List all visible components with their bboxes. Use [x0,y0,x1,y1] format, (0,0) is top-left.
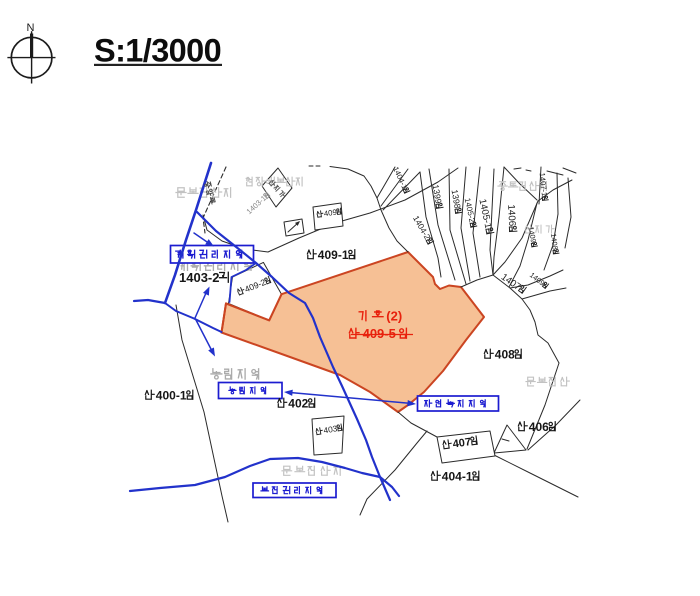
svg-text:N: N [27,22,35,34]
svg-text:1406: 1406 [505,204,517,227]
svg-text:(2): (2) [386,309,402,324]
svg-text:408: 408 [495,347,515,361]
svg-text:409-1: 409-1 [318,248,349,262]
svg-text:400-1: 400-1 [156,388,187,402]
svg-text:404-1: 404-1 [442,469,473,483]
svg-text:S:1/3000: S:1/3000 [94,33,221,69]
svg-text:407: 407 [452,436,472,450]
svg-text:1403-2: 1403-2 [179,270,219,285]
svg-text:406: 406 [529,420,549,434]
svg-text:402: 402 [288,396,308,410]
svg-text:409: 409 [323,208,337,219]
svg-text:409-5: 409-5 [363,326,396,341]
